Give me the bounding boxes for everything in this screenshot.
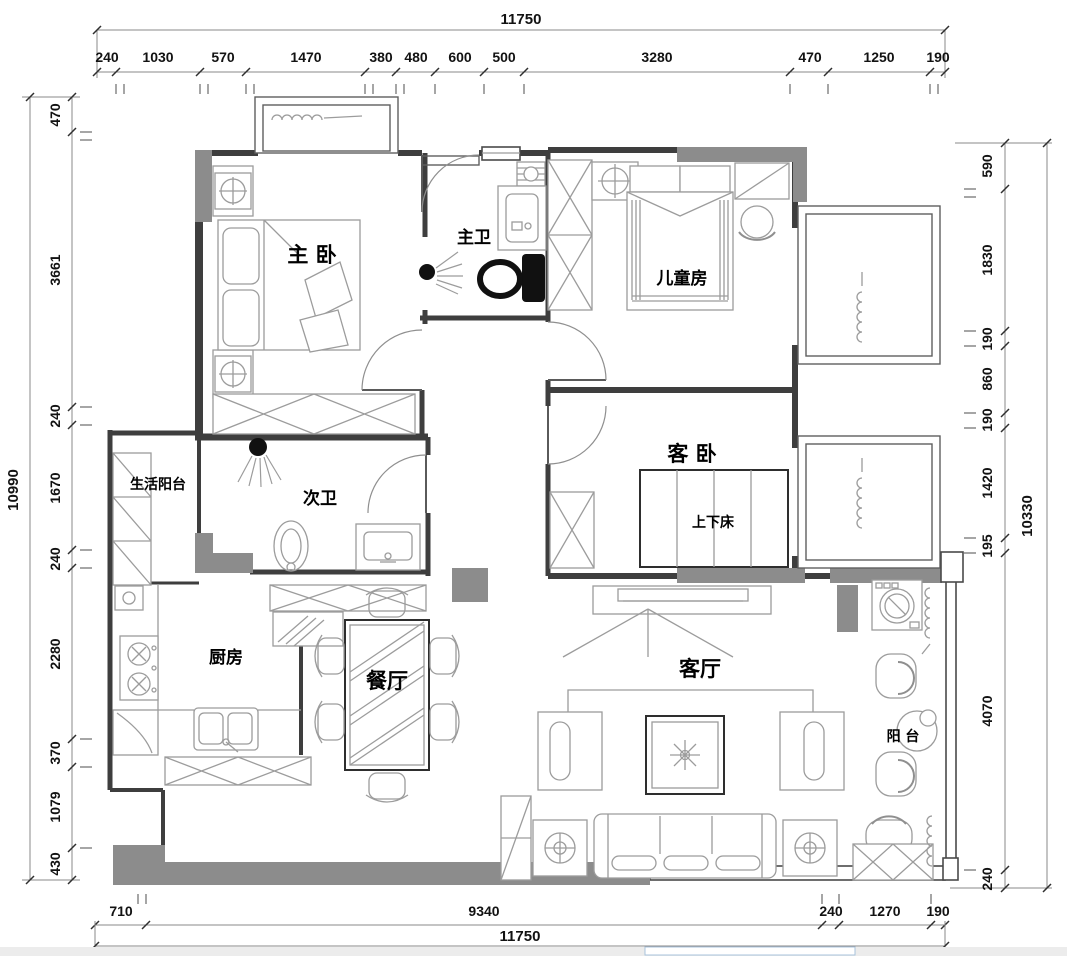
wall-gray-block (837, 585, 858, 632)
dim-seg: 1079 (47, 791, 63, 822)
floor-drain (517, 162, 545, 186)
dining-chair (430, 701, 459, 743)
floor-plan-svg: 11750 240 1030 570 1470 380 480 600 500 … (0, 0, 1067, 956)
room-second-bath: 次卫 (238, 438, 420, 571)
label-second-bath: 次卫 (303, 488, 337, 509)
room-balcony: 阳 台 (853, 580, 937, 880)
page-edge (0, 947, 1067, 956)
label-master-bath: 主卫 (457, 227, 491, 248)
bay-window-kids (798, 206, 940, 364)
dining-table (345, 620, 429, 770)
sofa (594, 814, 776, 878)
bay-window-master (255, 97, 398, 153)
tv-cabinet (593, 586, 771, 614)
lamp-icon (795, 833, 825, 863)
witness-ticks-left (80, 132, 92, 848)
dim-seg: 1250 (863, 49, 894, 65)
coffee-table (646, 716, 724, 794)
label-balcony: 阳 台 (887, 728, 920, 745)
label-kitchen: 厨房 (209, 647, 243, 668)
corner-cabinet (113, 710, 158, 755)
laundry-basin (115, 586, 143, 610)
dim-seg: 190 (979, 408, 995, 432)
dimension-chain-bottom: 710 9340 240 1270 190 11750 (91, 894, 950, 950)
dim-seg: 500 (492, 49, 516, 65)
kids-room-door (548, 322, 606, 380)
wall-gray-block (793, 158, 807, 202)
dim-seg: 240 (47, 547, 63, 571)
washing-machine (872, 580, 922, 630)
dim-seg: 480 (404, 49, 428, 65)
label-service-balcony: 生活阳台 (130, 476, 186, 493)
headboard (630, 166, 680, 192)
room-living: 客厅 (501, 586, 844, 880)
scrollbar-thumb[interactable] (645, 947, 855, 955)
label-master-bedroom: 主 卧 (287, 243, 336, 267)
dim-seg: 4070 (979, 695, 995, 726)
curtain-coil (925, 588, 930, 638)
room-guest: 上下床 客 卧 (550, 442, 788, 568)
dim-seg: 1420 (979, 467, 995, 498)
kids-bed (627, 192, 733, 310)
lamp-icon (545, 833, 575, 863)
dim-seg: 9340 (468, 903, 499, 919)
toilet (480, 254, 545, 302)
chair (739, 206, 775, 240)
dim-seg: 3280 (641, 49, 672, 65)
dim-seg: 370 (47, 741, 63, 765)
wardrobe (213, 394, 415, 434)
dim-seg: 195 (979, 534, 995, 558)
hall-closet (548, 160, 592, 310)
room-kids: 儿童房 (627, 163, 789, 310)
balcony-chair (876, 752, 916, 796)
label-living: 客厅 (679, 657, 721, 681)
balcony-window (941, 552, 963, 880)
dim-seg: 190 (926, 49, 950, 65)
master-bedroom-door (362, 330, 422, 390)
dining-chair (315, 701, 344, 743)
corner-post (943, 858, 958, 880)
dim-seg: 430 (47, 852, 63, 876)
room-master-bath: 主卫 (419, 162, 546, 302)
wall-gray-block (452, 568, 488, 602)
dim-seg: 240 (979, 867, 995, 891)
dimension-chain-right: 10330 590 1830 190 860 190 1420 195 4070… (950, 139, 1052, 892)
dim-seg: 240 (819, 903, 843, 919)
bathroom-sink (356, 524, 420, 570)
dim-seg: 2280 (47, 638, 63, 669)
armchair (538, 712, 602, 790)
dim-seg: 190 (979, 327, 995, 351)
entry-door (422, 155, 479, 212)
wardrobe (550, 492, 594, 568)
headboard (680, 166, 730, 192)
double-bed (218, 220, 360, 352)
squat-toilet (274, 521, 308, 571)
dim-seg: 380 (369, 49, 393, 65)
dim-seg: 470 (798, 49, 822, 65)
witness-ticks-top (116, 84, 938, 94)
wall-gray-block (677, 568, 805, 583)
pillow (223, 228, 259, 284)
storage-bench (853, 844, 933, 880)
dim-right-total: 10330 (1019, 495, 1036, 537)
dining-chair (430, 635, 459, 677)
dim-seg: 590 (979, 154, 995, 178)
room-master-bedroom: 主 卧 (213, 166, 415, 434)
console (273, 612, 343, 646)
corner-cabinet (735, 163, 789, 199)
witness-ticks-bottom (138, 894, 931, 904)
side-table (533, 820, 587, 876)
guest-bedroom-door (548, 406, 606, 464)
dim-left-total: 10990 (5, 469, 22, 511)
wall-gray-block (195, 553, 253, 573)
dim-seg: 1030 (142, 49, 173, 65)
dim-seg: 3661 (47, 254, 63, 285)
storage-cabinet (113, 453, 151, 585)
dim-seg: 600 (448, 49, 472, 65)
bathroom-sink (498, 186, 546, 250)
dim-seg: 470 (47, 103, 63, 127)
witness-ticks-right (964, 189, 976, 870)
armchair (780, 712, 844, 790)
dim-top-total: 11750 (501, 11, 542, 28)
tall-cabinet (501, 796, 531, 880)
room-service-balcony: 生活阳台 (113, 453, 186, 585)
entry-window (482, 147, 520, 160)
label-bunk-bed: 上下床 (692, 514, 735, 531)
stove (120, 636, 158, 700)
dim-seg: 860 (979, 367, 995, 391)
corner-post (941, 552, 963, 582)
dim-seg: 1470 (290, 49, 321, 65)
dim-seg: 710 (109, 903, 133, 919)
pillow (223, 290, 259, 346)
label-dining: 餐厅 (366, 669, 408, 693)
dim-seg: 1670 (47, 472, 63, 503)
tv-signal-lines (563, 609, 733, 657)
dining-chair (366, 773, 408, 802)
balcony-chair (876, 654, 916, 698)
side-table (783, 820, 837, 876)
wall-lamp (238, 438, 281, 487)
dimension-chain-top: 11750 240 1030 570 1470 380 480 600 500 … (93, 11, 950, 94)
dimension-chain-left: 10990 470 3661 240 1670 240 2280 370 107… (5, 93, 92, 884)
ceiling-track (568, 690, 813, 714)
wall-gray-block (677, 147, 807, 162)
floor-plan-page: 11750 240 1030 570 1470 380 480 600 500 … (0, 0, 1067, 956)
dim-seg: 1830 (979, 244, 995, 275)
decor-plant (670, 740, 700, 770)
wall-lamp (419, 252, 463, 294)
bay-window-guest (798, 436, 940, 568)
second-bath-door (368, 455, 426, 513)
bunk-bed: 上下床 (640, 470, 788, 567)
kitchen-sink (194, 708, 258, 752)
label-kids-room: 儿童房 (656, 268, 708, 289)
base-cabinet (165, 757, 311, 785)
label-guest-bedroom: 客 卧 (667, 442, 716, 466)
wall-gray-block (195, 150, 212, 222)
dim-seg: 240 (47, 404, 63, 428)
dim-seg: 190 (926, 903, 950, 919)
dim-seg: 1270 (869, 903, 900, 919)
dim-seg: 570 (211, 49, 235, 65)
dim-seg: 240 (95, 49, 119, 65)
dim-bottom-total: 11750 (500, 928, 541, 945)
